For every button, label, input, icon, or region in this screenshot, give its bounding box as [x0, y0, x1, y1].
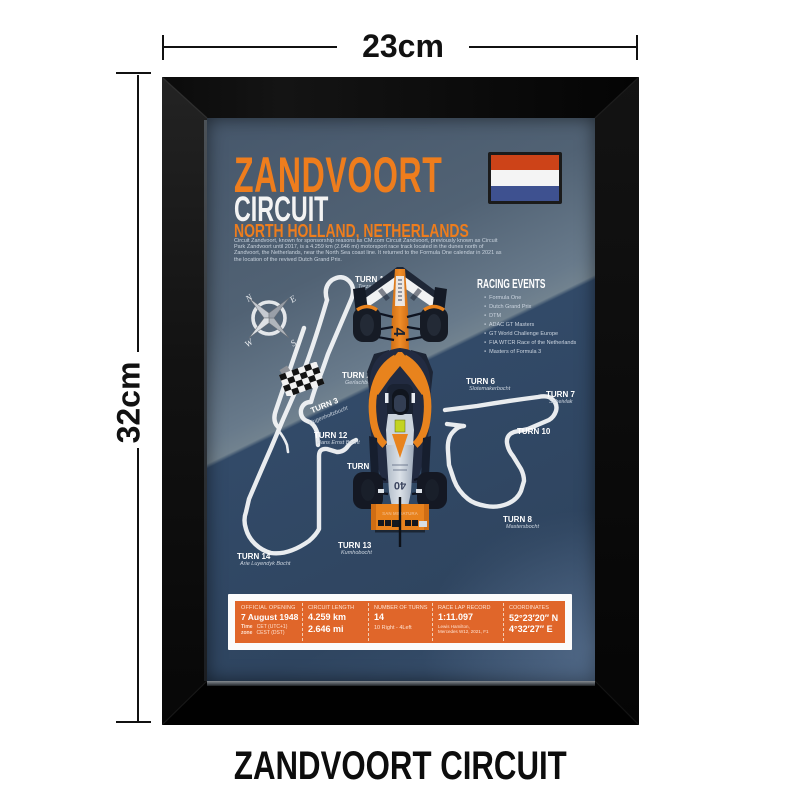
svg-text:40: 40 — [394, 479, 406, 491]
svg-text:4: 4 — [390, 328, 407, 337]
